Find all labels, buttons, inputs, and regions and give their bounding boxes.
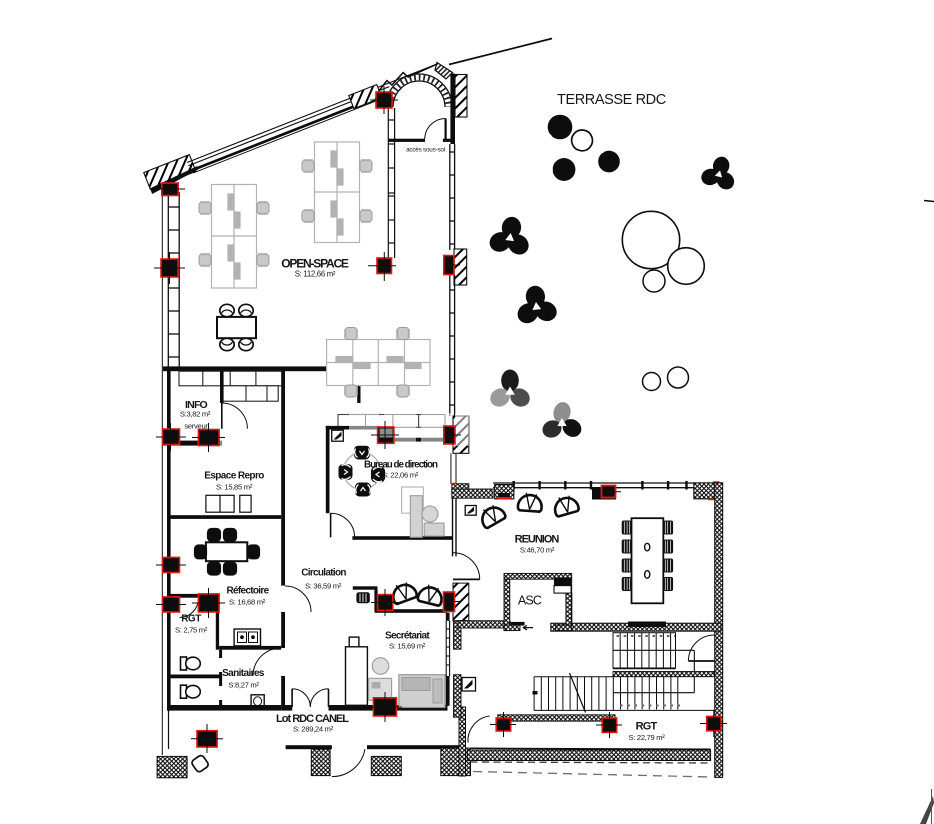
svg-text:Sanitaires: Sanitaires [222, 668, 265, 679]
svg-text:Lot RDC CANEL: Lot RDC CANEL [276, 713, 349, 725]
svg-text:S: 15,69 m²: S: 15,69 m² [389, 642, 426, 651]
svg-text:S: 22,06 m²: S: 22,06 m² [382, 471, 419, 480]
svg-text:S: 22,79 m²: S: 22,79 m² [629, 733, 666, 742]
svg-text:TERRASSE RDC: TERRASSE RDC [557, 92, 666, 108]
svg-text:S: 16,68 m²: S: 16,68 m² [229, 598, 266, 607]
svg-text:S: 36,59 m²: S: 36,59 m² [305, 582, 342, 591]
svg-text:S: 112,66 m²: S: 112,66 m² [295, 270, 336, 279]
svg-text:S: 289,24 m²: S: 289,24 m² [293, 725, 334, 734]
svg-text:S:8,27 m²: S:8,27 m² [228, 681, 259, 690]
svg-text:S: 15,85 m²: S: 15,85 m² [216, 483, 253, 492]
svg-text:S: 2,75 m²: S: 2,75 m² [175, 626, 208, 635]
svg-text:Réfectoire: Réfectoire [227, 586, 270, 597]
svg-text:REUNION: REUNION [515, 534, 560, 546]
svg-text:OPEN-SPACE: OPEN-SPACE [281, 257, 349, 271]
svg-text:Espace Repro: Espace Repro [204, 471, 264, 482]
svg-text:Bureau de direction: Bureau de direction [364, 460, 438, 471]
svg-text:S:46,70 m²: S:46,70 m² [520, 546, 555, 555]
svg-text:RGT: RGT [636, 721, 658, 733]
svg-text:ASC: ASC [518, 594, 542, 608]
svg-text:RGT: RGT [181, 614, 201, 625]
svg-text:S:3,82 m²: S:3,82 m² [180, 410, 211, 419]
svg-text:Circulation: Circulation [301, 568, 346, 579]
svg-text:Secrétariat: Secrétariat [385, 631, 430, 642]
svg-text:accès sous-sol: accès sous-sol [406, 147, 445, 154]
